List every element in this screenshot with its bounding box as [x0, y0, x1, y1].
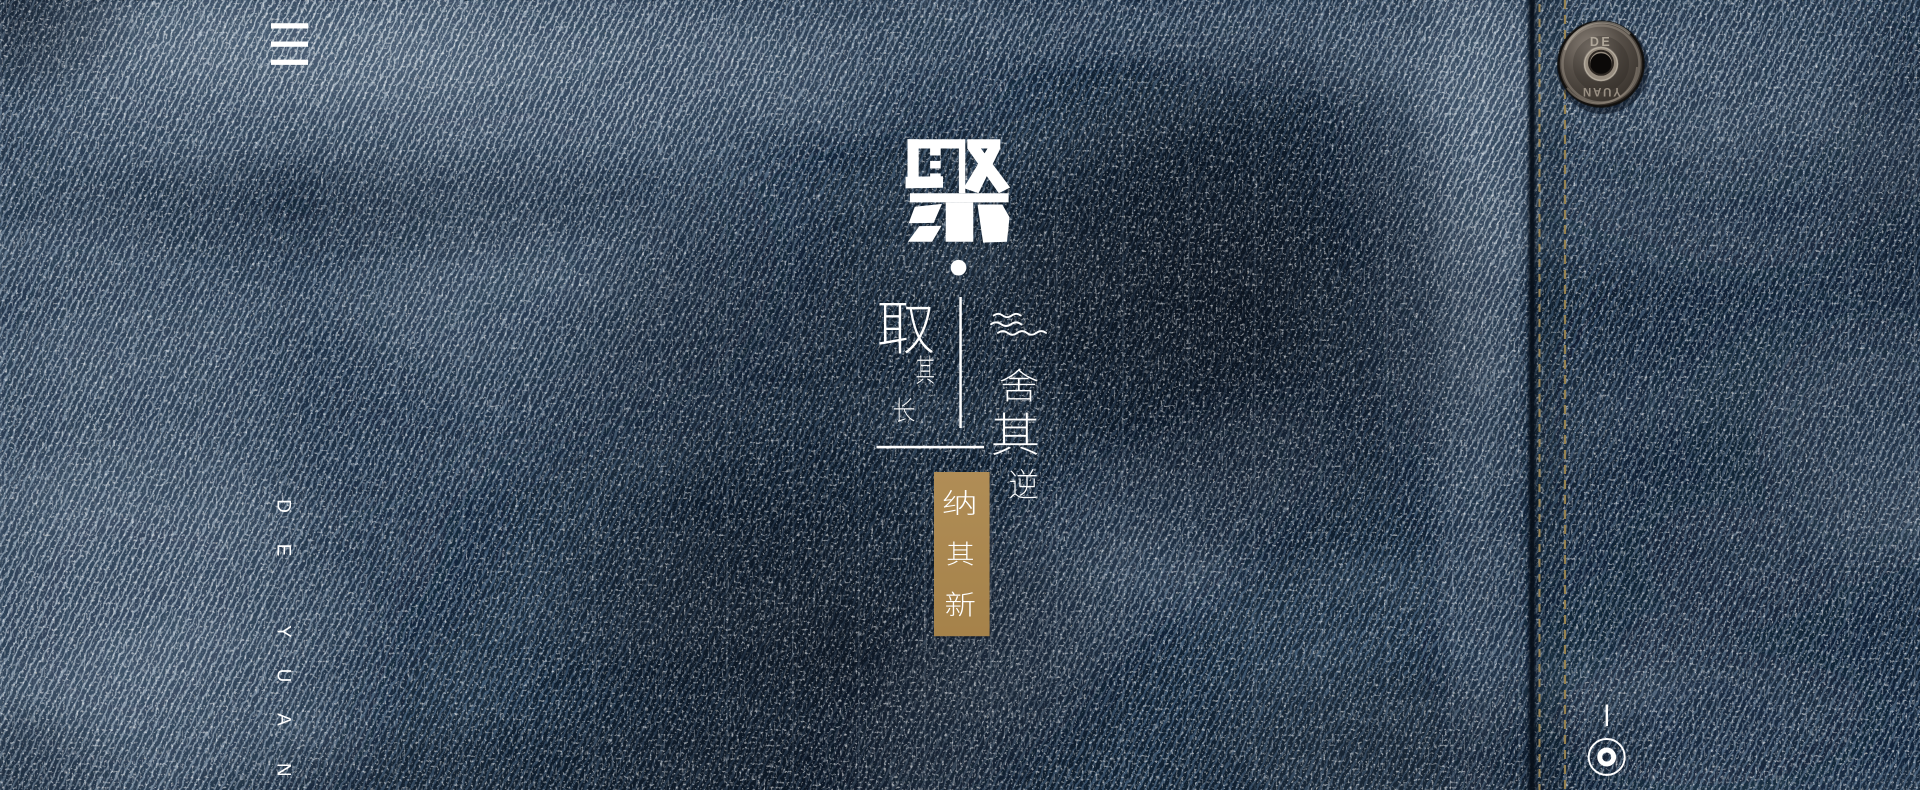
svg-text:D: D	[273, 499, 294, 513]
svg-text:YUAN: YUAN	[1581, 85, 1621, 97]
svg-text:N: N	[273, 763, 294, 777]
svg-text:Y: Y	[273, 625, 294, 638]
svg-text:U: U	[273, 669, 294, 683]
svg-text:E: E	[273, 544, 294, 557]
svg-text:A: A	[273, 713, 294, 726]
